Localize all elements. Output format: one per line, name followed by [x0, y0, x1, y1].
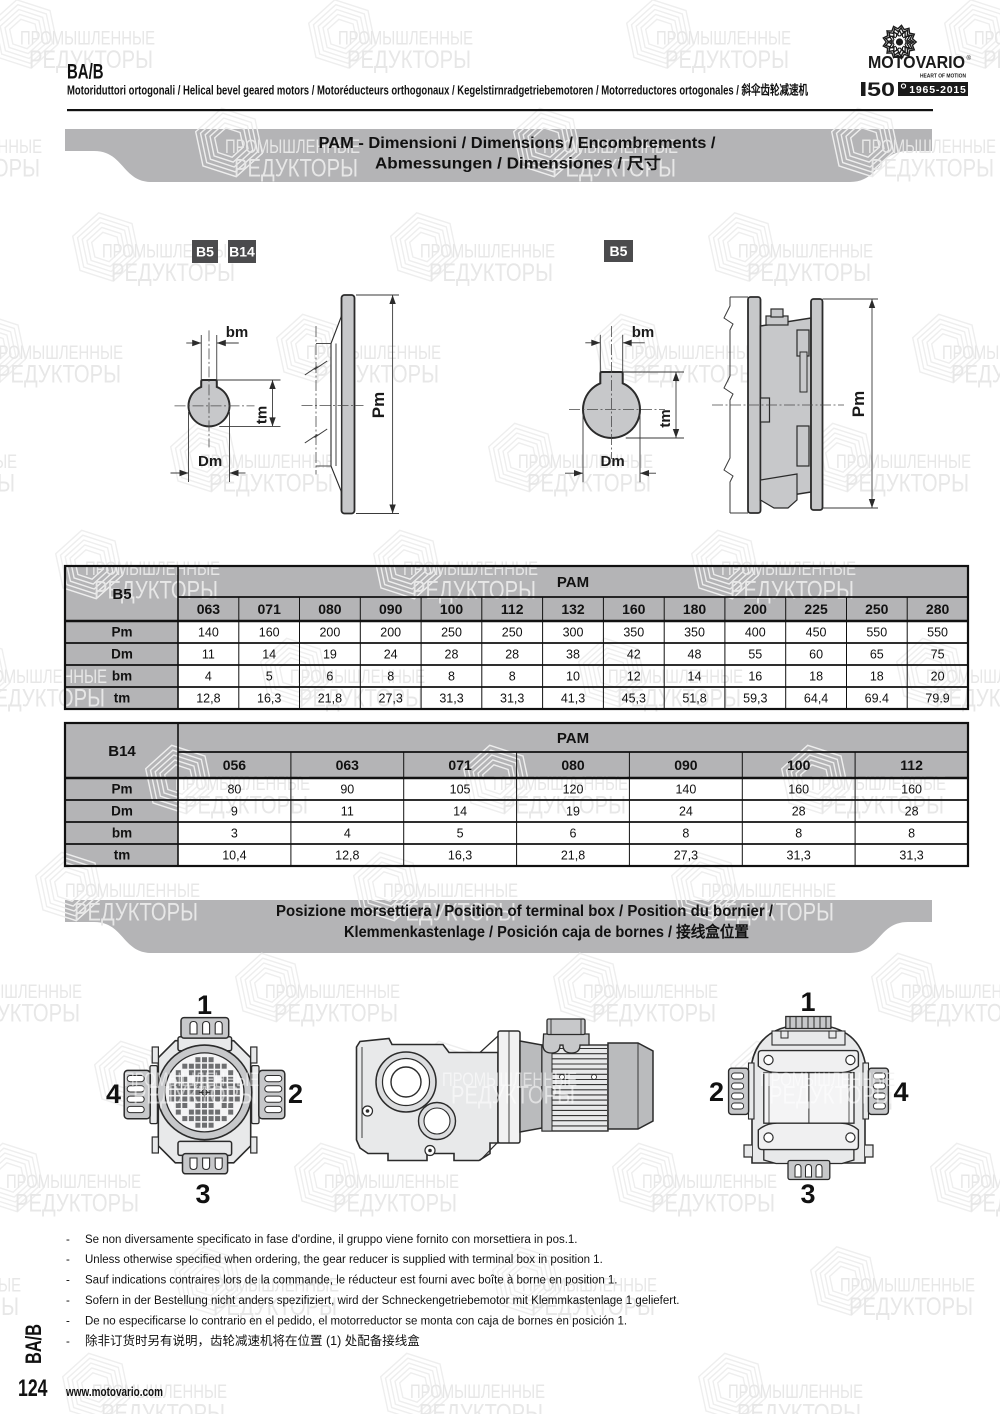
- svg-text:РЕДУКТОРЫ: РЕДУКТОРЫ: [769, 1082, 893, 1110]
- svg-text:РЕДУКТОРЫ: РЕДУКТОРЫ: [451, 1082, 575, 1110]
- svg-text:РЕДУКТОРЫ: РЕДУКТОРЫ: [133, 1082, 257, 1110]
